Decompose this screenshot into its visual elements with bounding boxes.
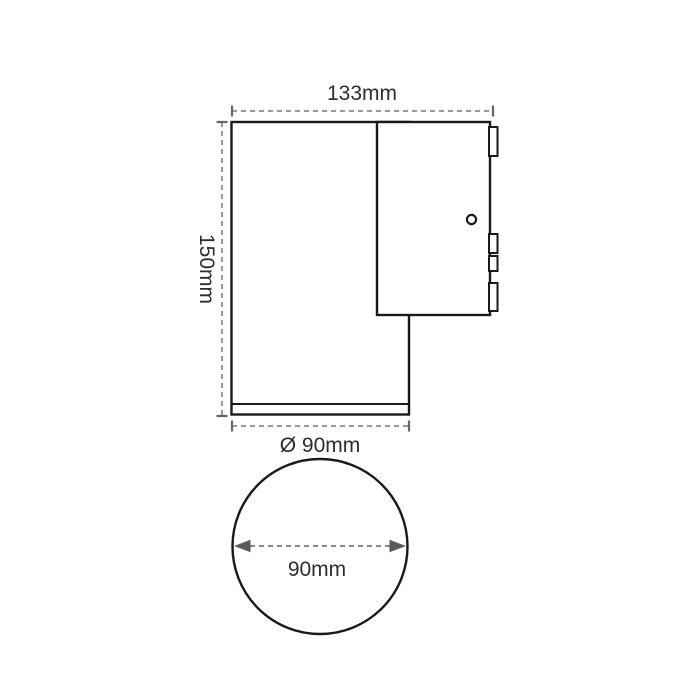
base-diameter-dimension: Ø 90mm (232, 421, 409, 458)
front-view: 90mm (233, 459, 408, 634)
front-view-circle (233, 459, 408, 634)
mount-tab-middle-upper (489, 234, 498, 253)
width-dimension-label: 133mm (327, 82, 397, 105)
mount-tab-middle-lower (489, 256, 498, 271)
front-diameter-label: 90mm (288, 558, 346, 581)
height-dimension-label: 150mm (195, 234, 218, 304)
screw-hole (467, 215, 476, 224)
dimension-diagram: 133mm 150mm Ø 90mm 90mm (0, 0, 700, 700)
side-view (232, 122, 498, 415)
base-diameter-label: Ø 90mm (280, 434, 361, 457)
height-dimension: 150mm (195, 122, 228, 416)
width-dimension: 133mm (232, 82, 493, 117)
mount-tab-top (489, 127, 498, 156)
mount-tab-bottom (489, 283, 498, 311)
dimension-diagram-page: 133mm 150mm Ø 90mm 90mm (0, 0, 700, 700)
